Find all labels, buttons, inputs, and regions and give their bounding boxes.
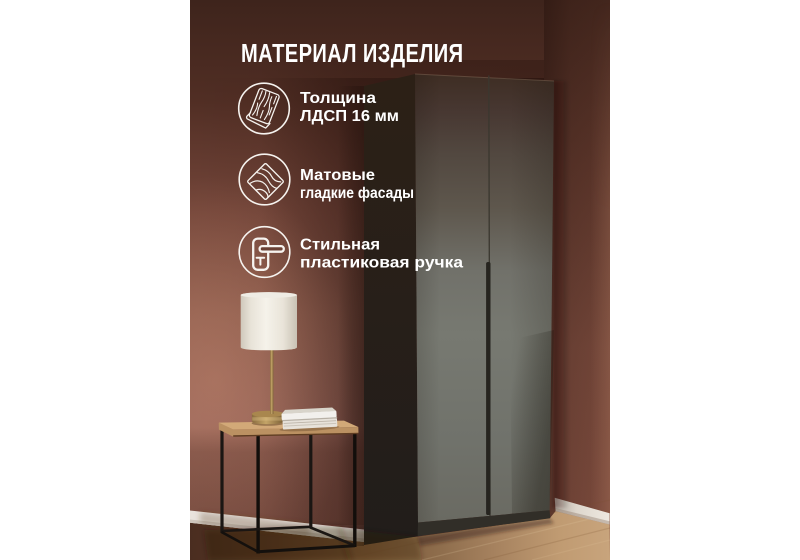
svg-text:Матовые: Матовые [300, 167, 375, 184]
svg-text:Толщина: Толщина [300, 90, 376, 107]
svg-text:Стильная: Стильная [300, 237, 380, 254]
svg-text:пластиковая ручка: пластиковая ручка [300, 255, 463, 272]
svg-text:ЛДСП 16 мм: ЛДСП 16 мм [300, 108, 399, 125]
svg-text:МАТЕРИАЛ ИЗДЕЛИЯ: МАТЕРИАЛ ИЗДЕЛИЯ [241, 40, 464, 68]
svg-text:гладкие фасады: гладкие фасады [300, 185, 414, 202]
